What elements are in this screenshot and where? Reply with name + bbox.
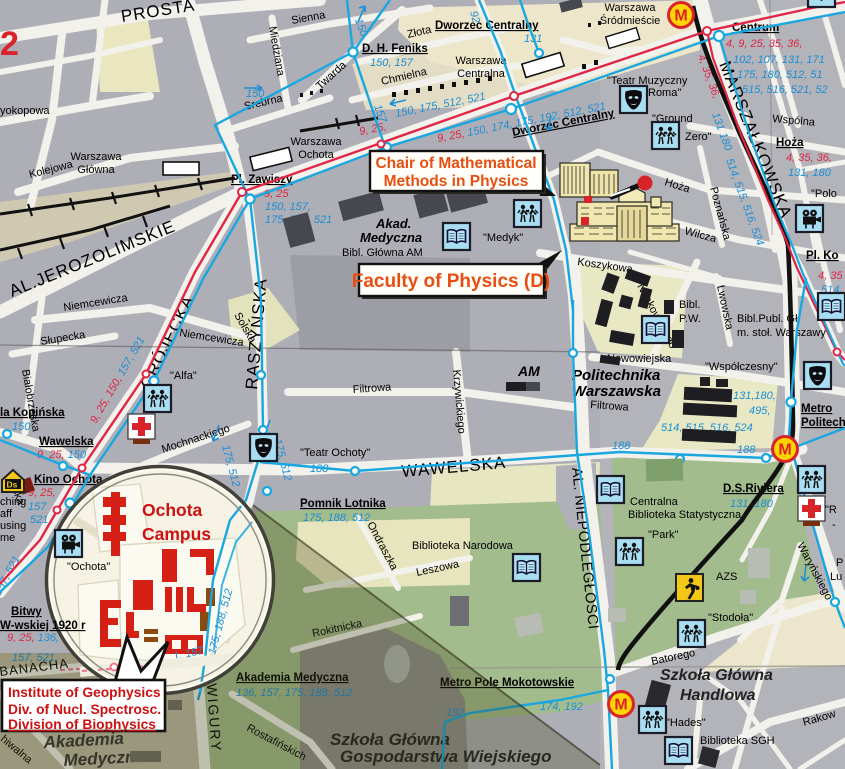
- svg-text:Faculty of Physics (D): Faculty of Physics (D): [352, 271, 551, 292]
- svg-text:"Współczesny": "Współczesny": [705, 361, 778, 373]
- svg-text:Campus: Campus: [142, 524, 211, 544]
- svg-text:ching: ching: [0, 496, 26, 508]
- svg-text:Bitwy: Bitwy: [11, 606, 42, 618]
- svg-text:"Stodoła": "Stodoła": [708, 612, 753, 624]
- svg-text:AM: AM: [517, 363, 540, 379]
- svg-text:"Ochota": "Ochota": [67, 561, 110, 573]
- svg-text:Metro: Metro: [801, 403, 832, 415]
- svg-text:D. H. Feniks: D. H. Feniks: [362, 43, 428, 55]
- svg-text:-: -: [832, 519, 836, 531]
- svg-text:521: 521: [30, 514, 48, 526]
- svg-text:Pl. Ko: Pl. Ko: [806, 250, 839, 262]
- svg-text:102, 107, 131, 171: 102, 107, 131, 171: [733, 54, 825, 66]
- svg-text:Warszawa: Warszawa: [605, 2, 657, 14]
- svg-text:Zero": Zero": [685, 131, 712, 143]
- svg-text:using: using: [0, 520, 26, 532]
- svg-text:131, 180: 131, 180: [788, 167, 832, 179]
- svg-text:4, 35: 4, 35: [818, 270, 843, 282]
- svg-text:m. stoł. Warszawy: m. stoł. Warszawy: [737, 327, 826, 339]
- svg-text:Wawelska: Wawelska: [39, 436, 94, 448]
- svg-text:Biblioteka Narodowa: Biblioteka Narodowa: [412, 540, 514, 552]
- svg-text:Biblioteka Statystyczna: Biblioteka Statystyczna: [628, 509, 742, 521]
- svg-text:Politechnika: Politechnika: [572, 367, 660, 384]
- svg-text:Warszawska: Warszawska: [572, 383, 661, 400]
- svg-text:Politechnik: Politechnik: [801, 417, 845, 429]
- svg-text:"Medyk": "Medyk": [483, 232, 523, 244]
- svg-text:157: 157: [28, 501, 47, 513]
- svg-text:Division of Biophysics: Division of Biophysics: [8, 717, 156, 732]
- svg-text:175, 180, 512, 51: 175, 180, 512, 51: [737, 69, 823, 81]
- svg-text:Szkoła Główna: Szkoła Główna: [660, 667, 773, 684]
- svg-text:150: 150: [246, 88, 265, 100]
- svg-text:"Hades": "Hades": [666, 717, 706, 729]
- svg-text:175, 188, 512: 175, 188, 512: [303, 512, 370, 524]
- svg-text:P.W.: P.W.: [679, 313, 701, 325]
- svg-text:P: P: [836, 557, 843, 569]
- svg-text:"Alfa": "Alfa": [170, 370, 197, 382]
- svg-text:4, 35, 36,: 4, 35, 36,: [786, 152, 832, 164]
- svg-text:Śródmieście: Śródmieście: [600, 14, 661, 27]
- svg-text:"R: "R: [825, 504, 837, 516]
- svg-text:AZS: AZS: [716, 571, 737, 583]
- svg-text:Bibl. Główna AM: Bibl. Główna AM: [342, 247, 423, 259]
- svg-text:Methods in Physics: Methods in Physics: [384, 173, 529, 190]
- svg-text:4, 9, 25, 35, 36,: 4, 9, 25, 35, 36,: [726, 38, 802, 50]
- svg-text:Institute of Geophysics: Institute of Geophysics: [8, 685, 161, 700]
- svg-text:9, 25, 136,: 9, 25, 136,: [7, 632, 59, 644]
- svg-text:495,: 495,: [749, 405, 770, 417]
- svg-text:Centralna: Centralna: [457, 68, 506, 80]
- svg-text:Kino Ochota: Kino Ochota: [34, 474, 103, 486]
- svg-text:yokopowa: yokopowa: [0, 105, 50, 117]
- svg-text:Lu: Lu: [830, 571, 842, 583]
- svg-text:Główna: Główna: [77, 164, 115, 176]
- svg-text:"Teatr Ochoty": "Teatr Ochoty": [300, 447, 370, 459]
- svg-text:"Polo: "Polo: [811, 188, 837, 200]
- svg-text:Bibl.: Bibl.: [679, 299, 700, 311]
- svg-text:me: me: [0, 532, 15, 544]
- svg-text:Akad.: Akad.: [375, 216, 411, 231]
- svg-text:150, 157: 150, 157: [370, 57, 414, 69]
- svg-text:Biblioteka SGH: Biblioteka SGH: [700, 735, 775, 747]
- svg-text:Ochota: Ochota: [298, 149, 334, 161]
- svg-text:Centralna: Centralna: [630, 496, 679, 508]
- svg-text:Hoża: Hoża: [776, 137, 804, 149]
- svg-text:Medyczna: Medyczna: [360, 230, 422, 245]
- svg-text:Warszawa: Warszawa: [71, 151, 123, 163]
- svg-text:Handlowa: Handlowa: [680, 687, 756, 704]
- svg-text:Div. of Nucl. Spectrosc.: Div. of Nucl. Spectrosc.: [8, 702, 161, 717]
- svg-text:Pomnik Lotnika: Pomnik Lotnika: [300, 498, 386, 510]
- svg-text:131,180,: 131,180,: [733, 390, 776, 402]
- svg-text:515, 516, 521, 52: 515, 516, 521, 52: [742, 84, 828, 96]
- svg-text:9, 25, 150: 9, 25, 150: [37, 449, 87, 461]
- svg-text:188: 188: [737, 444, 756, 456]
- svg-text:150: 150: [12, 421, 31, 433]
- svg-text:Ochota: Ochota: [142, 500, 203, 520]
- svg-text:Chair of Mathematical: Chair of Mathematical: [375, 155, 536, 172]
- svg-text:Roma": Roma": [648, 87, 681, 99]
- svg-text:2: 2: [0, 25, 19, 63]
- svg-text:Warszawa: Warszawa: [291, 136, 343, 148]
- svg-text:aff: aff: [0, 508, 13, 520]
- svg-text:Warszawa: Warszawa: [456, 55, 508, 67]
- svg-text:D.S.Riviera: D.S.Riviera: [723, 483, 784, 495]
- svg-text:"Park": "Park": [648, 529, 679, 541]
- svg-text:188: 188: [612, 440, 631, 452]
- svg-text:150, 157,: 150, 157,: [265, 201, 311, 213]
- svg-text:W-wskiej 1920 r: W-wskiej 1920 r: [0, 620, 86, 632]
